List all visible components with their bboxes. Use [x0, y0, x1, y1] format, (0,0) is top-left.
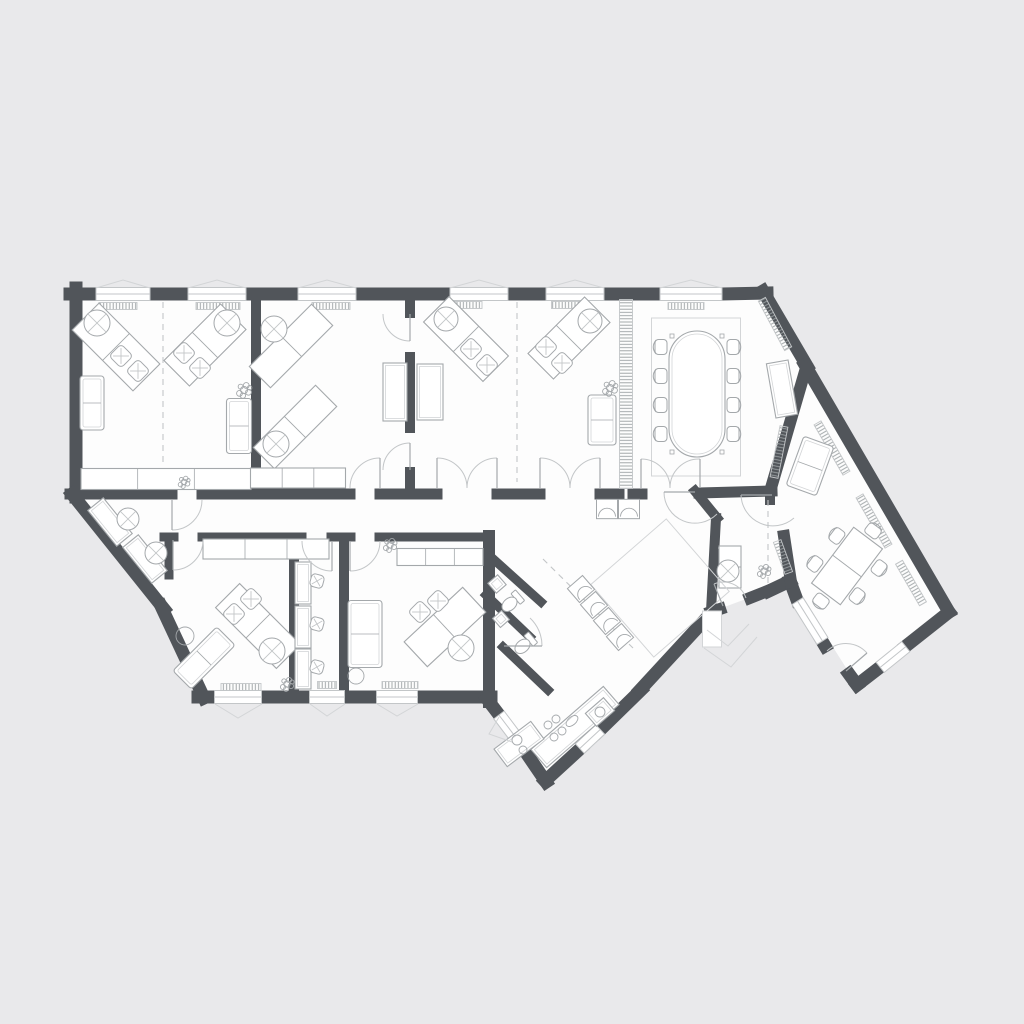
- floor-plan-stage: [0, 0, 1024, 1024]
- swivel-chair: [434, 307, 458, 331]
- window: [96, 288, 150, 301]
- radiator: [318, 682, 337, 689]
- swivel-chair: [84, 310, 110, 336]
- radiator: [221, 684, 261, 691]
- radiator: [382, 682, 418, 689]
- conference-chair: [727, 369, 741, 384]
- radiator: [312, 303, 350, 310]
- window: [215, 691, 262, 704]
- window: [450, 288, 508, 301]
- conference-table: [669, 331, 725, 457]
- swivel-chair: [578, 309, 602, 333]
- conference-chair: [727, 340, 741, 355]
- swivel-chair: [214, 310, 240, 336]
- swivel-chair: [448, 635, 474, 661]
- locker: [619, 499, 640, 518]
- swivel-chair: [259, 638, 285, 664]
- floor-plan-canvas: [0, 0, 1024, 1024]
- conference-chair: [653, 369, 667, 384]
- wardrobe: [397, 549, 483, 566]
- sofa: [588, 395, 616, 445]
- sideboard: [417, 364, 443, 420]
- wall: [711, 518, 716, 611]
- radiator: [668, 303, 704, 310]
- sofa: [80, 376, 104, 430]
- window: [188, 288, 246, 301]
- sofa: [348, 601, 382, 668]
- wall: [849, 674, 857, 685]
- cabinet: [251, 468, 346, 488]
- booth-desk: [295, 562, 311, 604]
- locker: [597, 499, 618, 518]
- swivel-chair: [145, 542, 167, 564]
- conference-chair: [653, 398, 667, 413]
- wardrobe: [203, 539, 329, 559]
- window: [377, 691, 418, 704]
- cabinet: [81, 469, 251, 490]
- sofa: [227, 399, 252, 454]
- window: [546, 288, 604, 301]
- sideboard: [383, 363, 407, 421]
- wall: [822, 641, 825, 646]
- window: [660, 288, 722, 301]
- conference-chair: [727, 427, 741, 442]
- wall: [750, 590, 770, 598]
- entry-landing: [703, 611, 722, 647]
- window: [298, 288, 356, 301]
- conference-chair: [653, 340, 667, 355]
- swivel-chair: [717, 560, 739, 582]
- booth-desk: [295, 606, 311, 648]
- booth-desk: [295, 649, 311, 689]
- radiator: [620, 300, 633, 489]
- conference-chair: [727, 398, 741, 413]
- swivel-chair: [261, 316, 287, 342]
- wall: [699, 491, 772, 493]
- window: [310, 691, 345, 704]
- swivel-chair: [263, 431, 289, 457]
- conference-chair: [653, 427, 667, 442]
- swivel-chair: [117, 508, 139, 530]
